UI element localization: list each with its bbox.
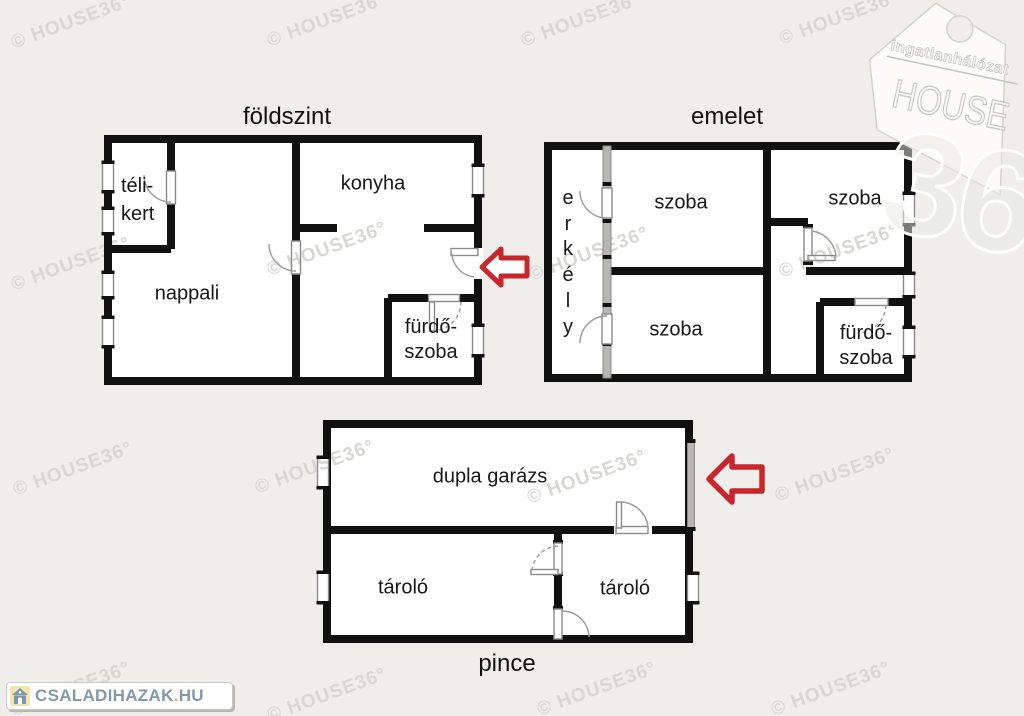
- floor-title-foldszint: földszint: [243, 103, 331, 131]
- floor-title-emelet: emelet: [691, 103, 763, 131]
- window-icon: [102, 271, 115, 300]
- csaladihazak-house-icon: [10, 686, 30, 706]
- room-label-furdo-line1: fürdő-: [404, 315, 457, 340]
- csaladihazak-text-tld: HU: [179, 686, 204, 705]
- erkely-letter: r: [562, 212, 573, 238]
- erkely-letter: k: [562, 237, 573, 263]
- window-icon: [102, 207, 115, 236]
- room-label-szoba-right: szoba: [828, 187, 881, 212]
- room-label-szoba-top: szoba: [654, 191, 707, 216]
- garage-door-icon: [687, 439, 696, 531]
- csaladihazak-text: CSALADIHAZAK.HU: [35, 686, 204, 706]
- window-icon: [102, 161, 115, 194]
- entrance-arrow-icon: [482, 249, 527, 285]
- window-icon: [317, 571, 330, 605]
- window-icon: [687, 572, 700, 605]
- erkely-letter: e: [562, 186, 573, 212]
- room-label-telikert-line2: kert: [121, 200, 154, 228]
- garage-entrance-arrow-icon: [709, 456, 762, 502]
- floor-title-pince: pince: [478, 650, 535, 678]
- room-label-telikert: téli- kert: [121, 172, 154, 228]
- csaladihazak-text-main: CSALADIHAZAK: [35, 686, 174, 705]
- room-label-furdo-line2: szoba: [404, 340, 457, 365]
- room-label-furdoszoba-ground: fürdő- szoba: [404, 315, 457, 365]
- erkely-letter: l: [562, 289, 573, 315]
- room-label-szoba-bottom: szoba: [649, 318, 702, 343]
- room-label-telikert-line1: téli-: [121, 172, 154, 200]
- window-icon: [472, 164, 485, 198]
- erkely-letter: y: [562, 314, 573, 340]
- room-label-tarolo-left: tároló: [378, 576, 428, 601]
- window-icon: [102, 316, 115, 349]
- room-label-tarolo-right: tároló: [600, 577, 650, 602]
- room-label-konyha: konyha: [341, 172, 406, 197]
- room-label-nappali: nappali: [155, 282, 220, 307]
- window-icon: [903, 326, 916, 359]
- room-label-erkely: e r k é l y: [562, 186, 573, 340]
- csaladihazak-logo: CSALADIHAZAK.HU: [6, 682, 233, 710]
- room-label-dupla-garazs: dupla garázs: [433, 465, 548, 490]
- floorplan-image: © HOUSE36° © HOUSE36° © HOUSE36° © HOUSE…: [0, 0, 1024, 716]
- room-label-furdo-line1: fürdő-: [839, 321, 892, 346]
- room-label-furdoszoba-upper: fürdő- szoba: [839, 321, 892, 371]
- erkely-letter: é: [562, 263, 573, 289]
- room-label-furdo-line2: szoba: [839, 346, 892, 371]
- window-icon: [472, 324, 485, 358]
- house36-logo: ingatlanhálózat HOUSE 36: [856, 0, 1024, 306]
